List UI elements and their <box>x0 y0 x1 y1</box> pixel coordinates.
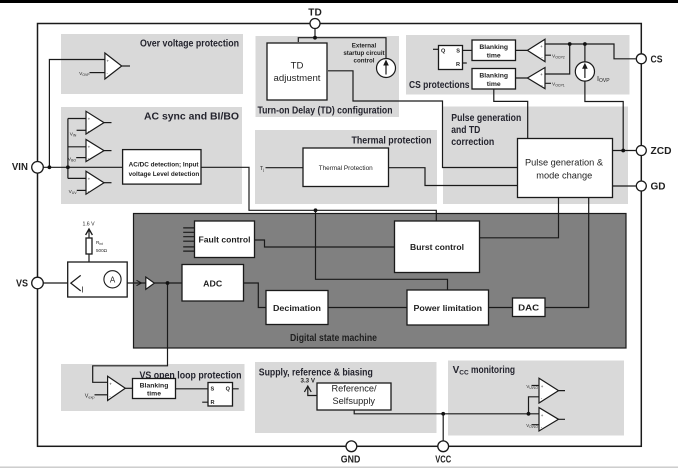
svg-text:TD: TD <box>291 61 304 72</box>
svg-text:3.3 V: 3.3 V <box>301 378 316 385</box>
svg-text:Q: Q <box>441 48 446 54</box>
svg-text:S: S <box>456 48 460 54</box>
svg-text:GD: GD <box>651 182 666 193</box>
svg-text:+: + <box>88 145 91 150</box>
svg-text:Blanking: Blanking <box>479 44 508 51</box>
svg-text:Decimation: Decimation <box>273 303 321 313</box>
svg-text:A: A <box>110 276 116 285</box>
svg-text:CC: CC <box>459 370 469 377</box>
svg-text:time: time <box>487 81 501 88</box>
svg-text:Digital state machine: Digital state machine <box>290 333 377 344</box>
svg-text:time: time <box>487 52 501 59</box>
svg-text:AC/DC detection; Input: AC/DC detection; Input <box>129 162 200 169</box>
svg-text:Reference/: Reference/ <box>332 383 377 394</box>
svg-text:AC sync and BI/BO: AC sync and BI/BO <box>144 112 239 123</box>
svg-text:+: + <box>109 381 112 386</box>
svg-text:correction: correction <box>451 137 494 148</box>
svg-text:VS: VS <box>16 278 28 289</box>
svg-text:+: + <box>88 117 91 122</box>
svg-text:TD: TD <box>308 8 322 19</box>
svg-text:monitoring: monitoring <box>471 365 515 376</box>
svg-text:+: + <box>541 384 544 389</box>
svg-text:Fault control: Fault control <box>199 235 251 245</box>
svg-text:500Ω: 500Ω <box>96 248 108 253</box>
svg-text:Over voltage protection: Over voltage protection <box>140 39 239 50</box>
svg-text:CS: CS <box>651 54 663 65</box>
svg-text:S: S <box>211 387 215 393</box>
svg-text:voltage Level detection: voltage Level detection <box>129 171 200 178</box>
svg-text:Thermal Protection: Thermal Protection <box>319 165 373 172</box>
svg-text:1.6 V: 1.6 V <box>82 222 95 228</box>
svg-text:R: R <box>211 400 215 406</box>
svg-text:time: time <box>147 391 161 398</box>
svg-text:VCC: VCC <box>435 454 451 465</box>
svg-text:and TD: and TD <box>451 125 480 136</box>
svg-text:+: + <box>88 176 91 181</box>
svg-text:adjustment: adjustment <box>274 73 321 84</box>
svg-text:ZCD: ZCD <box>651 146 672 157</box>
svg-text:+: + <box>107 59 110 64</box>
svg-text:Selfsupply: Selfsupply <box>333 395 376 406</box>
svg-text:mode change: mode change <box>536 170 592 181</box>
svg-text:Pulse generation &: Pulse generation & <box>525 158 604 169</box>
svg-text:startup circuit: startup circuit <box>343 50 384 57</box>
svg-text:DAC: DAC <box>518 303 539 313</box>
svg-text:Power limitation: Power limitation <box>414 303 483 313</box>
svg-text:Supply, reference & biasing: Supply, reference & biasing <box>259 368 373 379</box>
svg-text:VIN: VIN <box>12 162 28 173</box>
svg-text:+: + <box>541 413 544 418</box>
svg-text:CS protections: CS protections <box>409 80 470 91</box>
svg-text:Blanking: Blanking <box>140 382 169 389</box>
svg-text:+: + <box>540 72 543 77</box>
svg-text:control: control <box>354 58 375 65</box>
svg-text:Q: Q <box>226 387 231 393</box>
svg-text:Thermal protection: Thermal protection <box>352 136 432 147</box>
svg-text:R: R <box>456 62 460 68</box>
svg-text:GND: GND <box>341 454 361 465</box>
svg-text:+: + <box>540 44 543 49</box>
svg-text:Burst control: Burst control <box>410 242 464 252</box>
svg-text:Pulse generation: Pulse generation <box>451 113 521 124</box>
svg-text:External: External <box>352 43 377 50</box>
svg-text:I: I <box>82 286 84 295</box>
svg-text:Turn-on Delay (TD) configurati: Turn-on Delay (TD) configuration <box>258 106 393 117</box>
svg-text:ADC: ADC <box>203 278 222 288</box>
svg-text:Blanking: Blanking <box>479 73 508 80</box>
